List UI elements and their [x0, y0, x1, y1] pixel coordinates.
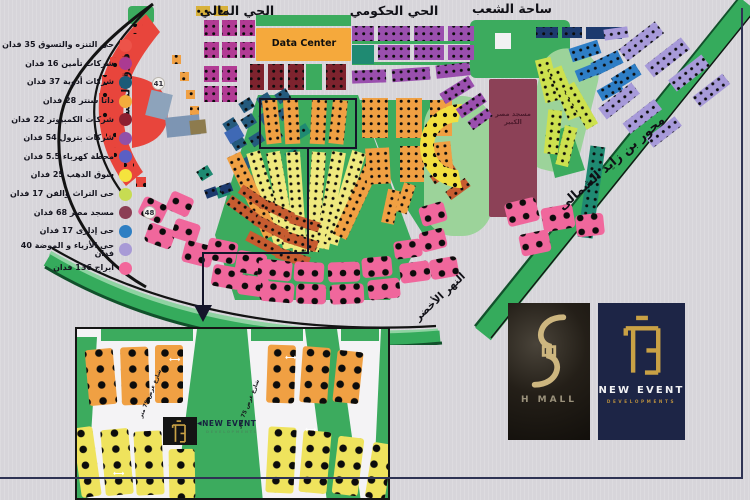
- legend-item-label: شركات الكمبيوتر 22 فدان: [11, 116, 114, 124]
- new-event-title: NEW EVENT: [598, 385, 684, 396]
- legend-item-label: شركات تأمين 16 فدان: [25, 60, 114, 68]
- legend-color-dot: [119, 132, 132, 145]
- inset-logo-plate: [163, 417, 197, 445]
- legend-color-dot: [119, 39, 132, 52]
- legend-item-7: سوق الدهب 25 فدان: [2, 166, 134, 185]
- data-center-label: Data Center: [258, 38, 350, 49]
- legend: حى التنزه والتسوق 35 فدانشركات تأمين 16 …: [2, 36, 134, 278]
- legend-item-4: شركات الكمبيوتر 22 فدان: [2, 110, 134, 129]
- insurance-blocks: [196, 6, 255, 102]
- inset-map: شارع عرض 75 متر شارع عرض 75 متر ⟷ ⟷ ⟷ ⟷ …: [75, 327, 390, 500]
- computer-companies-blocks: [250, 64, 346, 90]
- district-label-financial: الحي المالي: [185, 3, 289, 18]
- h-mall-title: H MALL: [521, 395, 577, 405]
- legend-item-1: شركات تأمين 16 فدان: [2, 55, 134, 74]
- legend-color-dot: [119, 262, 132, 275]
- legend-color-dot: [119, 150, 132, 163]
- new-event-logo: NEW EVENT DEVELOPMENTS: [598, 303, 685, 440]
- legend-item-label: حى التراث والفن 17 فدان: [10, 190, 114, 198]
- district-label-governmental: الحي الحكومي: [340, 3, 448, 18]
- legend-item-3: داتا سنتر 28 فدان: [2, 92, 134, 111]
- legend-item-12: أبراج 136 فدان: [2, 259, 134, 278]
- inset-new-event-sub: DEVELOPMENTS: [206, 430, 258, 434]
- dimension-arrow-icon: ⟷: [285, 353, 296, 362]
- legend-item-label: سوق الدهب 25 فدان: [31, 171, 114, 179]
- dimension-arrow-icon: ⟷: [305, 425, 316, 434]
- legend-item-9: مسجد مصر 68 فدان: [2, 203, 134, 222]
- legend-item-label: مسجد مصر 68 فدان: [34, 209, 114, 217]
- road-badge-48: 48: [143, 206, 156, 219]
- legend-item-label: شركات بترول 54 فدان: [23, 134, 114, 142]
- legend-item-label: أبراج 136 فدان: [53, 264, 114, 272]
- legend-item-8: حى التراث والفن 17 فدان: [2, 185, 134, 204]
- legend-color-dot: [119, 206, 132, 219]
- legend-item-2: شركات أدوية 37 فدان: [2, 73, 134, 92]
- legend-item-6: محطة كهرباء 5.5 فدان: [2, 148, 134, 167]
- h-mall-logo: H MALL: [508, 303, 590, 440]
- inset-new-event-wordmark: ◀NEW EVENT: [197, 419, 256, 428]
- legend-color-dot: [119, 76, 132, 89]
- legend-color-dot: [119, 169, 132, 182]
- legend-item-label: حى الأزياء و الموضة 40 فدان: [2, 242, 114, 258]
- grand-mosque-block: [489, 79, 537, 217]
- grand-mosque-label: مسجد مصر الكبير: [490, 110, 536, 126]
- legend-item-label: محطة كهرباء 5.5 فدان: [24, 153, 114, 161]
- district-label-peoples-square: ساحة الشعب: [462, 1, 562, 16]
- road-badge-41: 41: [152, 77, 165, 90]
- frame-border-bottom: [0, 477, 743, 479]
- legend-item-label: حى إدارى 17 فدان: [40, 227, 114, 235]
- legend-color-dot: [119, 243, 132, 256]
- legend-color-dot: [119, 95, 132, 108]
- legend-item-10: حى إدارى 17 فدان: [2, 222, 134, 241]
- legend-item-11: حى الأزياء و الموضة 40 فدان: [2, 241, 134, 260]
- new-event-subtitle: DEVELOPMENTS: [607, 399, 676, 404]
- legend-color-dot: [119, 225, 132, 238]
- legend-color-dot: [119, 57, 132, 70]
- legend-item-0: حى التنزه والتسوق 35 فدان: [2, 36, 134, 55]
- legend-item-label: شركات أدوية 37 فدان: [27, 78, 114, 86]
- legend-color-dot: [119, 188, 132, 201]
- legend-item-5: شركات بترول 54 فدان: [2, 129, 134, 148]
- legend-item-label: داتا سنتر 28 فدان: [43, 97, 114, 105]
- h-mall-emblem-icon: [526, 313, 572, 389]
- dimension-arrow-icon: ⟷: [169, 355, 180, 364]
- new-event-emblem-icon: [621, 315, 663, 377]
- frame-border-right: [741, 8, 743, 479]
- masterplan-poster: الحي المالي الحي الحكومي ساحة الشعب فندق…: [0, 0, 750, 500]
- legend-item-label: حى التنزه والتسوق 35 فدان: [2, 41, 114, 49]
- legend-color-dot: [119, 113, 132, 126]
